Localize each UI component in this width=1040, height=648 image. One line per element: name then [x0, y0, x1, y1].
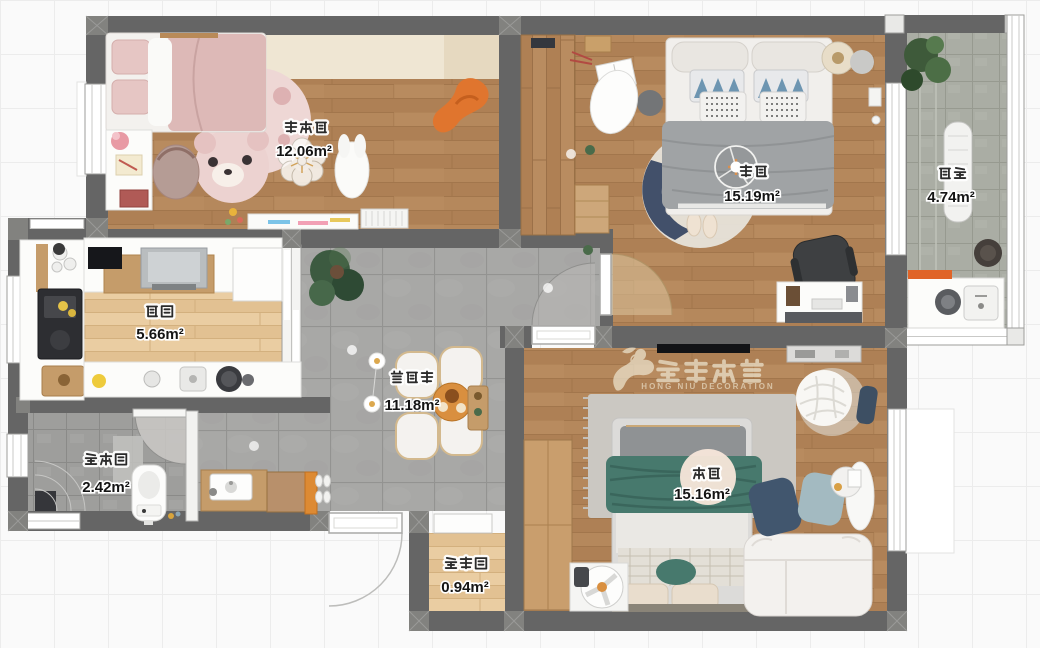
svg-text:15.16m²: 15.16m² [674, 486, 730, 503]
svg-text:12.06m²: 12.06m² [276, 143, 332, 160]
svg-text:2.42m²: 2.42m² [82, 479, 130, 496]
svg-text:15.19m²: 15.19m² [724, 188, 780, 205]
svg-text:0.94m²: 0.94m² [441, 579, 489, 596]
svg-text:4.74m²: 4.74m² [927, 189, 975, 206]
svg-text:5.66m²: 5.66m² [136, 326, 184, 343]
svg-text:HONG NIU DECORATION: HONG NIU DECORATION [641, 382, 774, 391]
svg-text:11.18m²: 11.18m² [384, 397, 439, 414]
